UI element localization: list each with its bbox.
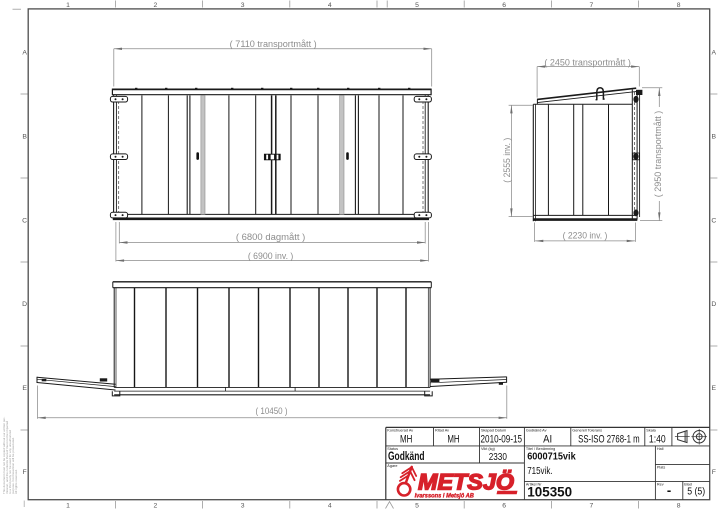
svg-text:( 2555 inv. ): ( 2555 inv. ) (502, 138, 512, 183)
svg-text:1: 1 (66, 503, 70, 509)
svg-text:8: 8 (677, 2, 681, 9)
svg-text:E: E (712, 385, 717, 392)
svg-text:( 2950 transportmått ): ( 2950 transportmått ) (653, 111, 663, 198)
svg-text:Skapad Datum: Skapad Datum (481, 428, 506, 432)
svg-text:C: C (711, 217, 716, 224)
svg-text:Skala: Skala (646, 428, 656, 432)
svg-text:3: 3 (241, 503, 245, 509)
svg-text:105350: 105350 (527, 484, 572, 499)
svg-text:Godkänd: Godkänd (388, 449, 425, 463)
svg-text:6: 6 (502, 2, 506, 9)
svg-text:2010-09-15: 2010-09-15 (481, 433, 523, 445)
svg-text:2: 2 (154, 2, 158, 9)
svg-text:Hall: Hall (657, 447, 664, 451)
svg-text:Godkänd Av: Godkänd Av (526, 428, 547, 432)
svg-text:715vik.: 715vik. (527, 465, 552, 477)
svg-text:8: 8 (677, 503, 681, 509)
svg-text:7: 7 (590, 503, 594, 509)
svg-text:1:40: 1:40 (649, 434, 666, 446)
svg-text:Ägare: Ägare (387, 464, 397, 468)
svg-text:6000715vik: 6000715vik (527, 451, 576, 463)
svg-text:5 (5): 5 (5) (687, 487, 705, 498)
svg-text:1: 1 (66, 2, 70, 9)
svg-text:5: 5 (415, 2, 419, 9)
svg-text:( 6900 inv. ): ( 6900 inv. ) (248, 251, 294, 261)
svg-text:AI: AI (543, 433, 552, 445)
svg-text:B: B (712, 133, 717, 140)
svg-text:Konstruerad Av: Konstruerad Av (387, 428, 413, 432)
svg-text:( 7110 transportmått ): ( 7110 transportmått ) (230, 39, 317, 49)
svg-text:2: 2 (154, 503, 158, 509)
svg-text:D: D (711, 301, 716, 308)
svg-text:2330: 2330 (489, 451, 507, 463)
svg-text:All rights reserved.: All rights reserved. (14, 469, 18, 494)
svg-text:Plats: Plats (657, 465, 666, 469)
svg-text:Ivarssons i Metsjö AB: Ivarssons i Metsjö AB (415, 492, 475, 499)
svg-text:A: A (22, 50, 27, 57)
svg-text:B: B (22, 133, 27, 140)
svg-text:MH: MH (400, 433, 412, 445)
svg-text:F: F (23, 469, 27, 476)
svg-text:F: F (712, 469, 716, 476)
svg-text:MH: MH (447, 433, 459, 445)
svg-text:Rev: Rev (657, 482, 664, 486)
svg-text:3: 3 (241, 2, 245, 9)
svg-text:6: 6 (502, 503, 506, 509)
svg-text:METSJÖ: METSJÖ (418, 470, 514, 495)
svg-text:7: 7 (590, 2, 594, 9)
svg-text:Generell Tolerans: Generell Tolerans (572, 428, 602, 432)
svg-text:SS-ISO 2768-1 m: SS-ISO 2768-1 m (578, 434, 640, 446)
svg-text:E: E (22, 385, 27, 392)
svg-text:Ritad Av: Ritad Av (435, 428, 449, 432)
svg-text:D: D (22, 301, 27, 308)
svg-text:( 2230 inv. ): ( 2230 inv. ) (563, 230, 608, 240)
svg-text:A: A (712, 50, 717, 57)
svg-text:-: - (667, 483, 671, 498)
svg-text:4: 4 (328, 2, 332, 9)
svg-text:C: C (22, 217, 27, 224)
svg-text:Vikt (kg): Vikt (kg) (481, 447, 496, 451)
svg-text:( 6800 dagmått ): ( 6800 dagmått ) (236, 232, 306, 242)
svg-text:( 10450 ): ( 10450 ) (256, 406, 288, 416)
svg-text:4: 4 (328, 503, 332, 509)
svg-text:5: 5 (415, 503, 419, 509)
svg-text:( 2450 transportmått ): ( 2450 transportmått ) (544, 58, 631, 68)
